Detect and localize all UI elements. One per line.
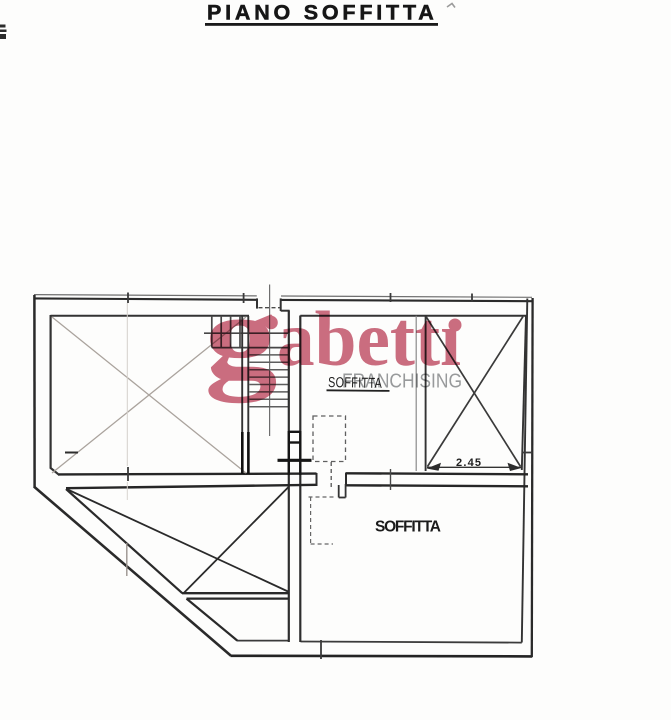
svg-text:SOFFITTA: SOFFITTA <box>375 519 442 536</box>
svg-text:abettı: abettı <box>277 295 461 382</box>
svg-text:2.45: 2.45 <box>456 457 481 469</box>
svg-text:FRANCHISING: FRANCHISING <box>342 371 462 393</box>
svg-text:g: g <box>205 270 278 404</box>
